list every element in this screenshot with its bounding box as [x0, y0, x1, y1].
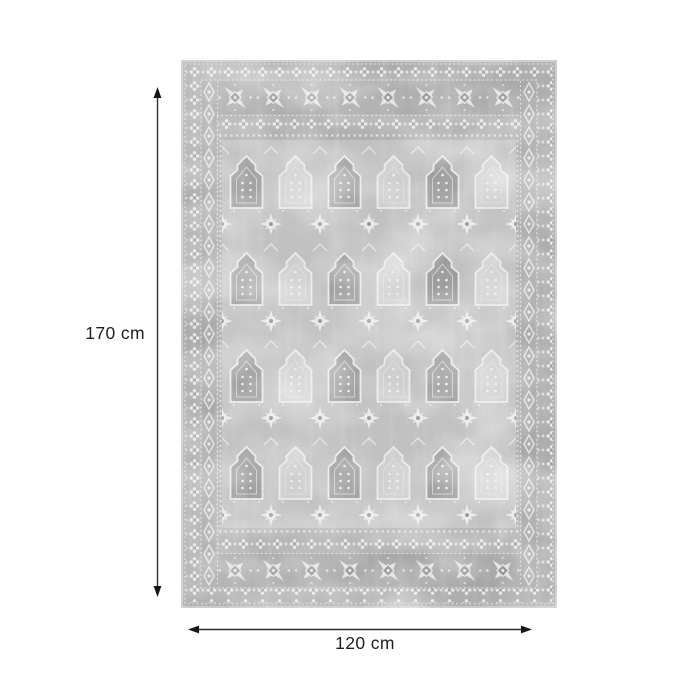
arrowhead-up-icon	[154, 87, 162, 98]
width-dimension-label: 120 cm	[318, 635, 412, 653]
rug-image	[181, 60, 557, 608]
product-dimension-diagram: 170 cm 120 cm	[0, 0, 700, 700]
arrowhead-down-icon	[154, 586, 162, 597]
rug-illustration	[181, 60, 557, 608]
height-dimension-label: 170 cm	[53, 325, 145, 343]
arrowhead-right-icon	[521, 626, 532, 634]
height-arrow	[147, 84, 168, 600]
arrowhead-left-icon	[188, 626, 199, 634]
